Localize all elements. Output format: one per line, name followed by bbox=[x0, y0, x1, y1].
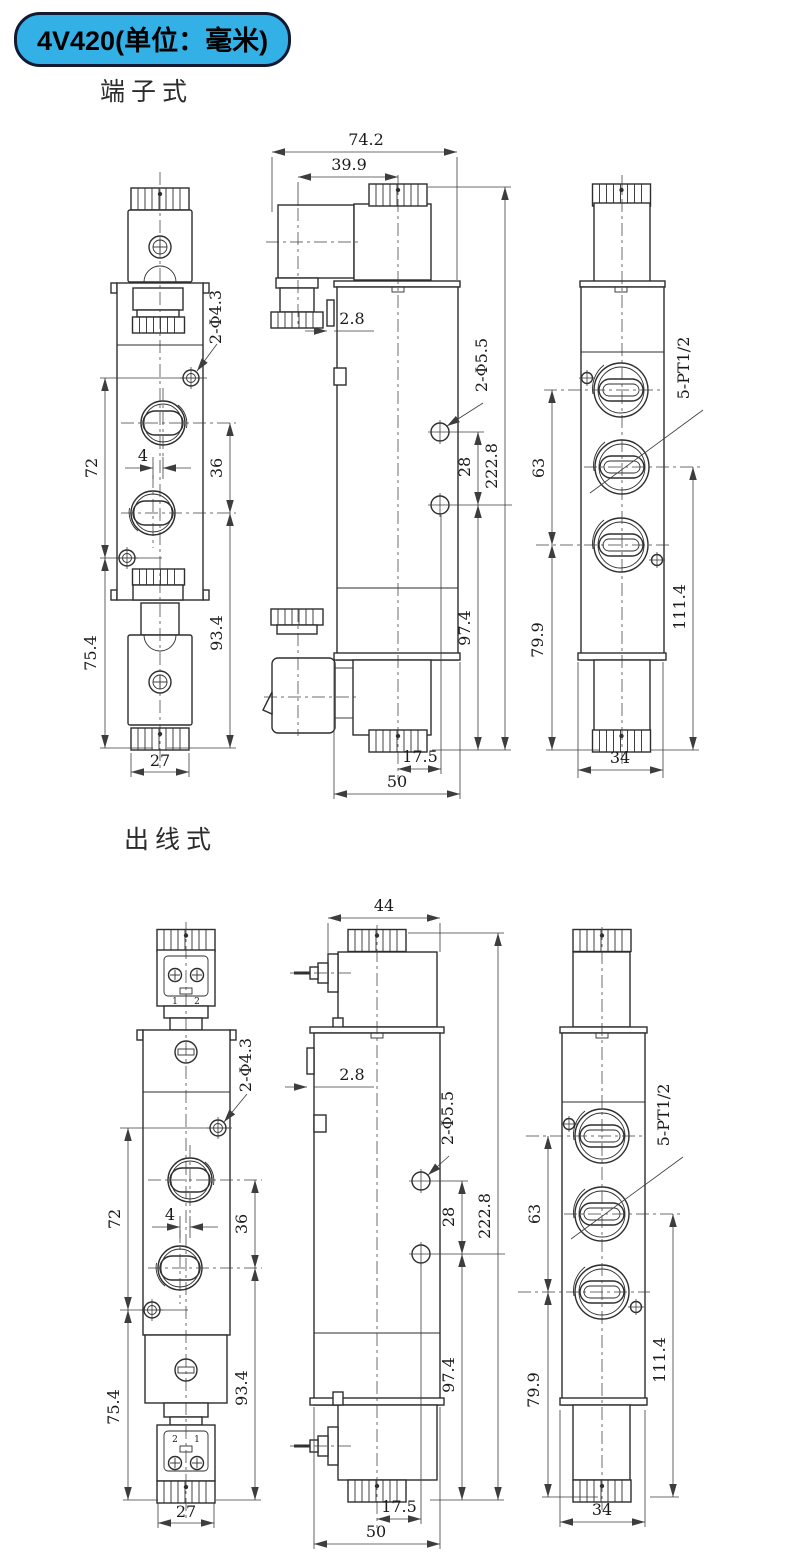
side-view-wireout: 44 2.8 2-Φ5.5 28 97.4 222.8 17.5 50 bbox=[285, 896, 505, 1549]
dim-79-9: 79.9 bbox=[524, 1372, 543, 1408]
coil-top-side bbox=[294, 930, 437, 1031]
dim-port-label: 5-PT1/2 bbox=[654, 1084, 673, 1147]
dim-34: 34 bbox=[592, 1500, 612, 1519]
dim-93-4: 93.4 bbox=[207, 615, 226, 651]
end-view-wireout: 5-PT1/2 63 79.9 111.4 34 bbox=[518, 927, 683, 1527]
valve-body-side bbox=[307, 1027, 444, 1405]
dim-hole-front: 2-Φ4.3 bbox=[236, 1038, 255, 1092]
dim-4: 4 bbox=[165, 1205, 175, 1224]
dim-50: 50 bbox=[366, 1522, 386, 1541]
dim-port-label: 5-PT1/2 bbox=[674, 337, 693, 400]
dim-2-8: 2.8 bbox=[339, 1065, 364, 1084]
dim-72: 72 bbox=[105, 1209, 124, 1229]
dim-74-2: 74.2 bbox=[348, 130, 384, 149]
valve-body-side bbox=[327, 281, 460, 660]
dim-hole-front: 2-Φ4.3 bbox=[206, 290, 225, 344]
dim-222-8: 222.8 bbox=[475, 1193, 494, 1239]
dim-222-8: 222.8 bbox=[482, 443, 501, 489]
dim-63: 63 bbox=[525, 1204, 544, 1224]
dim-75-4: 75.4 bbox=[81, 635, 100, 671]
dim-79-9: 79.9 bbox=[528, 622, 547, 658]
model-badge: 4V420(单位：毫米) bbox=[14, 12, 291, 67]
dim-27: 27 bbox=[150, 751, 170, 770]
dim-97-4: 97.4 bbox=[455, 610, 474, 646]
dim-4: 4 bbox=[138, 446, 148, 465]
dim-hole-side: 2-Φ5.5 bbox=[438, 1091, 457, 1145]
dim-36: 36 bbox=[207, 458, 226, 478]
dim-50: 50 bbox=[387, 772, 407, 791]
dim-hole-side: 2-Φ5.5 bbox=[472, 338, 491, 392]
drawing-terminal-type: 2-Φ4.3 4 72 75.4 36 93.4 27 bbox=[0, 120, 790, 810]
dim-72: 72 bbox=[82, 458, 101, 478]
dim-28: 28 bbox=[439, 1207, 458, 1227]
drawing-wireout-type: 1 2 bbox=[0, 880, 790, 1564]
dim-111-4: 111.4 bbox=[670, 584, 689, 630]
terminal-label-1: 1 bbox=[194, 1435, 200, 1445]
side-view-terminal: 74.2 39.9 2.8 2-Φ5.5 28 97.4 222.8 17.5 … bbox=[263, 130, 512, 799]
solenoid-tube-top bbox=[593, 184, 651, 283]
solenoid-tube-bottom bbox=[593, 660, 651, 752]
drawing-page: 4V420(单位：毫米) 端子式 出线式 bbox=[0, 0, 790, 1564]
dim-44: 44 bbox=[374, 896, 394, 915]
dim-36: 36 bbox=[232, 1214, 251, 1234]
coil-bottom-side bbox=[294, 1392, 437, 1502]
dim-27: 27 bbox=[176, 1502, 196, 1521]
dim-34: 34 bbox=[610, 748, 630, 767]
dim-93-4: 93.4 bbox=[232, 1370, 251, 1406]
front-view-wireout: 1 2 bbox=[104, 922, 262, 1528]
valve-body-front bbox=[137, 1030, 236, 1403]
dim-17-5: 17.5 bbox=[381, 1497, 417, 1516]
dim-2-8: 2.8 bbox=[339, 309, 364, 328]
front-view-terminal: 2-Φ4.3 4 72 75.4 36 93.4 27 bbox=[81, 172, 236, 777]
terminal-label-2: 2 bbox=[172, 1435, 178, 1445]
dim-111-4: 111.4 bbox=[650, 1337, 669, 1383]
valve-body-end bbox=[560, 1027, 647, 1405]
dim-63: 63 bbox=[529, 458, 548, 478]
dim-39-9: 39.9 bbox=[331, 155, 367, 174]
section-title-wireout: 出线式 bbox=[124, 820, 217, 856]
dim-28: 28 bbox=[455, 457, 474, 477]
dim-75-4: 75.4 bbox=[104, 1389, 123, 1425]
section-title-terminal: 端子式 bbox=[100, 72, 193, 108]
dim-97-4: 97.4 bbox=[439, 1357, 458, 1393]
end-view-terminal: 5-PT1/2 63 79.9 111.4 34 bbox=[528, 175, 703, 778]
dim-17-5: 17.5 bbox=[402, 747, 438, 766]
